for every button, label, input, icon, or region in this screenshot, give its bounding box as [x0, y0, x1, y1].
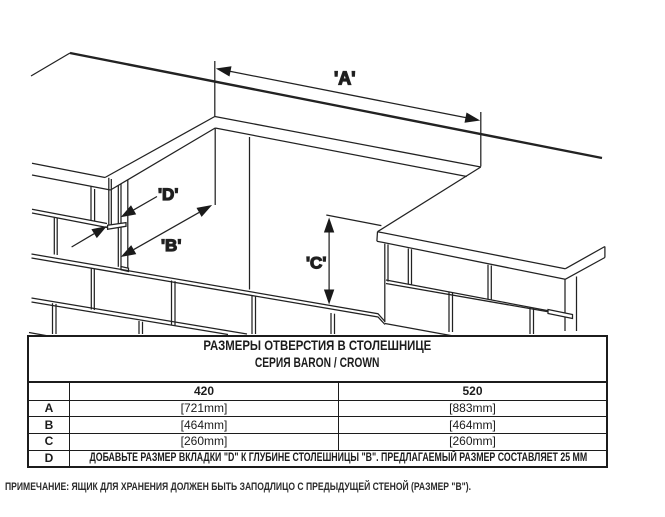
svg-text:'D': 'D'	[158, 185, 178, 204]
svg-text:'A': 'A'	[334, 69, 356, 89]
svg-text:'B': 'B'	[161, 236, 181, 255]
svg-text:'C': 'C'	[306, 254, 326, 273]
